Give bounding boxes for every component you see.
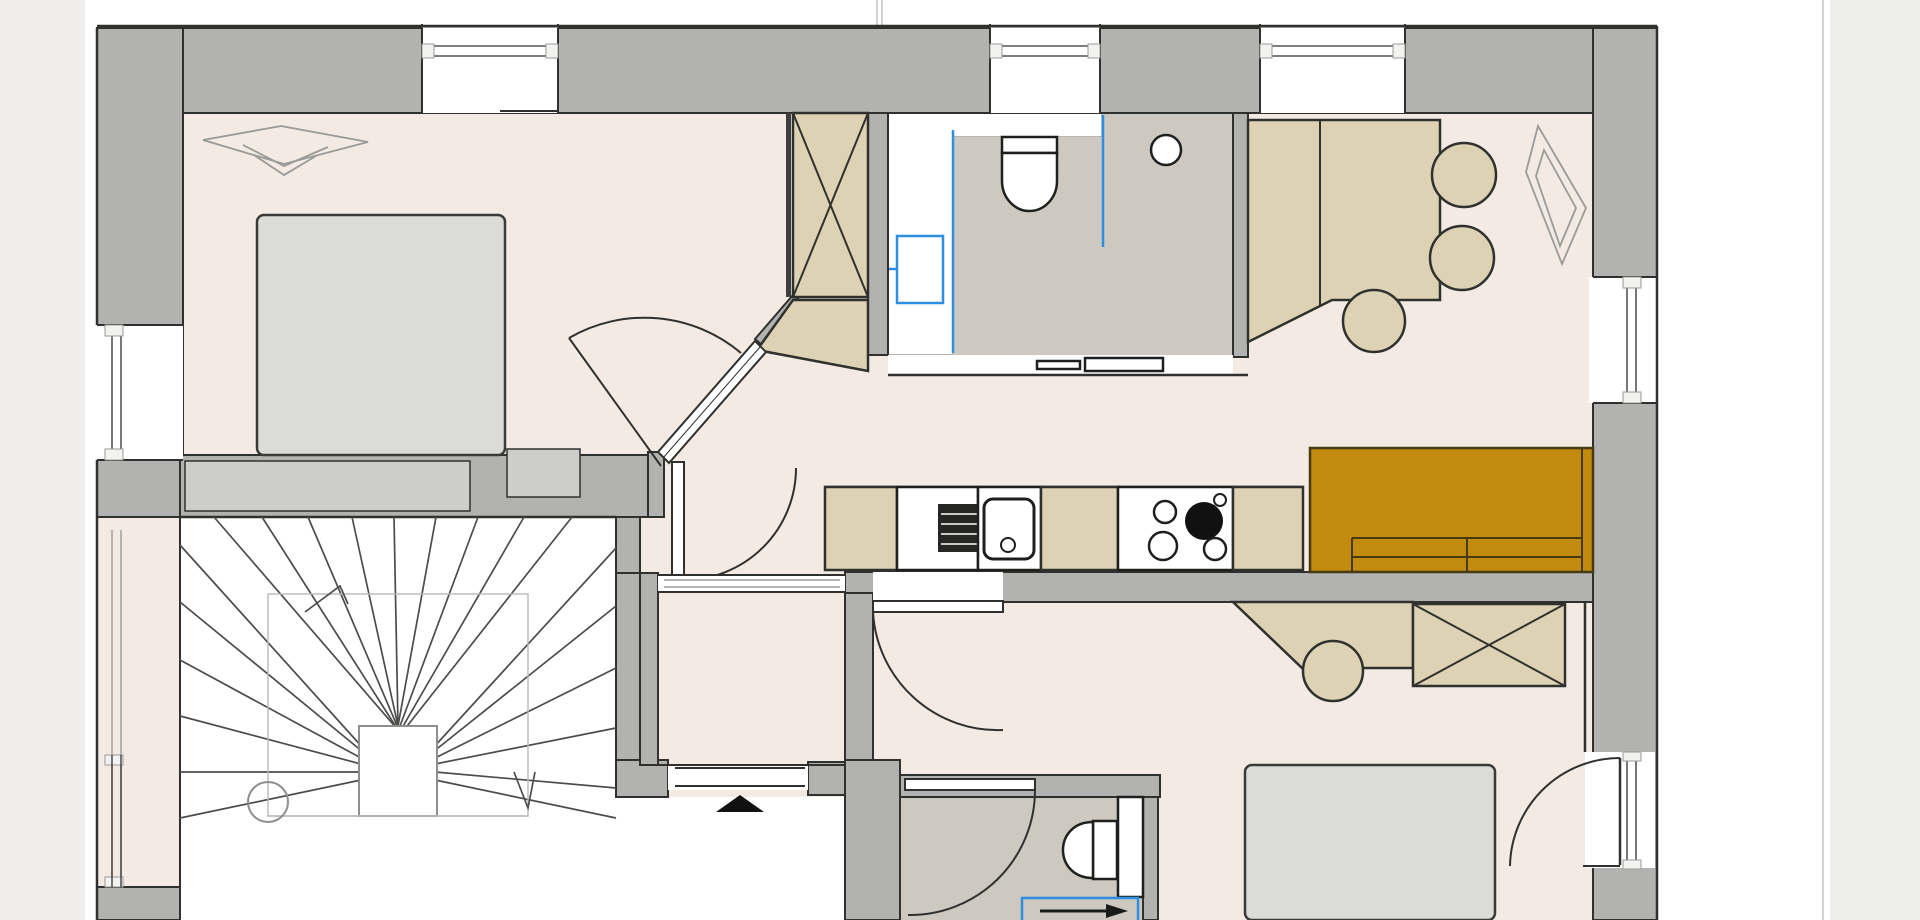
living-sofa xyxy=(1310,448,1593,572)
wall-bathroom2-west xyxy=(845,760,900,920)
wall-stub xyxy=(648,452,664,517)
toilet-2 xyxy=(1063,821,1117,879)
burner xyxy=(1154,501,1176,523)
counter-unit xyxy=(1041,487,1118,570)
wall-bathroom2-east xyxy=(1143,797,1158,920)
wall-bathroom1-west xyxy=(868,113,888,355)
window-left-upper xyxy=(93,325,183,460)
extractor-light-icon xyxy=(1151,135,1181,165)
vestibule-top-threshold xyxy=(658,574,845,593)
right-margin-strip xyxy=(1830,0,1920,920)
chair xyxy=(1343,290,1405,352)
sink-drain xyxy=(1001,538,1015,552)
burner xyxy=(1149,532,1177,560)
bedroom2-door-leaf xyxy=(873,601,1003,612)
bed-2 xyxy=(1245,765,1495,920)
wall-stair-east xyxy=(616,517,640,797)
counter-unit xyxy=(1233,487,1303,570)
wall-inset xyxy=(507,449,580,497)
wall-vestibule-west xyxy=(640,573,658,765)
floor-plan-canvas xyxy=(0,0,1920,920)
radiator xyxy=(1037,361,1080,369)
wall-inset xyxy=(185,461,470,511)
duct xyxy=(1118,797,1143,897)
wall-bathroom1-east xyxy=(1233,113,1248,357)
chair xyxy=(1432,143,1496,207)
wall-wardrobe-edge xyxy=(786,113,791,297)
bed-1 xyxy=(257,215,505,455)
floor-plan-page xyxy=(0,0,1920,920)
wall-left-pier xyxy=(97,460,180,517)
wall-top xyxy=(97,28,1657,113)
burner xyxy=(1185,502,1223,540)
wall-vestibule-east xyxy=(845,593,873,765)
window-top-b xyxy=(990,24,1100,113)
burner xyxy=(1204,538,1226,560)
wall-left-pier xyxy=(97,887,180,920)
window-top-c xyxy=(1260,24,1405,113)
window-right-upper xyxy=(1589,277,1657,403)
toilet-1 xyxy=(1002,137,1057,211)
left-margin-strip xyxy=(0,0,85,920)
window-top-a xyxy=(422,24,558,113)
radiator xyxy=(1085,358,1163,371)
burner xyxy=(1214,494,1226,506)
chair xyxy=(1430,226,1494,290)
wall-entry-pier-right xyxy=(808,762,845,795)
door-opening xyxy=(873,572,1003,602)
stool xyxy=(1303,641,1363,701)
counter-unit xyxy=(825,487,897,570)
bathroom1-floor xyxy=(953,113,1233,355)
stair-newel xyxy=(359,726,437,816)
